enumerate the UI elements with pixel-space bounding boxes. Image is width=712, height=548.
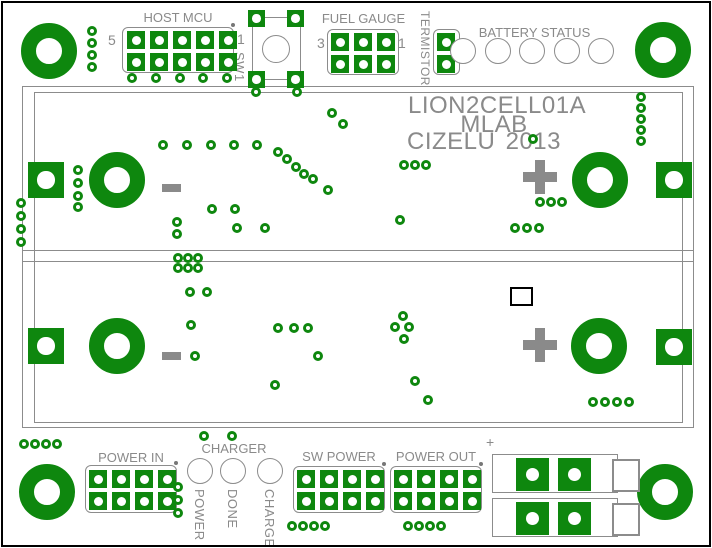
fiducial-square [510, 287, 533, 306]
via [19, 439, 29, 449]
via [636, 125, 646, 135]
cell1-negative-hole [89, 152, 145, 208]
via [173, 482, 183, 492]
host-mcu-header-pin1-dot [231, 23, 235, 27]
battery-contact-pad [28, 328, 64, 364]
via [327, 108, 337, 118]
battery-minus-symbol [162, 352, 181, 360]
sw-power-header-pad [366, 492, 384, 510]
via [414, 521, 424, 531]
sw1-pad [248, 10, 265, 27]
via [423, 395, 433, 405]
power-in-header-pad [89, 470, 107, 488]
via [185, 287, 195, 297]
via [390, 322, 400, 332]
via [282, 154, 292, 164]
via [303, 323, 313, 333]
via [309, 521, 319, 531]
power-out-header-pad [417, 492, 435, 510]
mounting-hole-bottom-left [19, 464, 75, 520]
sw1-pad [287, 10, 304, 27]
pcb-board: HOST MCU 5 1 SW1 FUEL GAUGE 3 1 TERMISTO… [0, 0, 712, 548]
via [320, 521, 330, 531]
via [636, 103, 646, 113]
via [410, 376, 420, 386]
via [127, 73, 137, 83]
fuel-gauge-header-pad [331, 55, 349, 73]
via [30, 439, 40, 449]
via [425, 521, 435, 531]
battery-holder-outline-inner [34, 92, 683, 423]
via [16, 237, 26, 247]
sw-power-header-pad [366, 470, 384, 488]
power-out-header-pad [417, 470, 435, 488]
power-out-label: POWER OUT [390, 450, 482, 463]
via [230, 204, 240, 214]
power-out-header-pad [440, 492, 458, 510]
via [16, 198, 26, 208]
host-mcu-pin5-label: 5 [108, 33, 116, 47]
terminal-clamp [612, 503, 640, 536]
host-mcu-header-pad [196, 53, 214, 71]
terminal-pad [558, 458, 591, 491]
via [399, 334, 409, 344]
via [395, 215, 405, 225]
host-mcu-label: HOST MCU [122, 11, 234, 24]
via [421, 160, 431, 170]
battery-plus-symbol [535, 160, 545, 194]
battery-status-led [519, 38, 545, 64]
charger-charge-led-label: CHARGE [263, 489, 276, 548]
battery-status-led [554, 38, 580, 64]
host-mcu-header-pad [173, 31, 191, 49]
via [87, 38, 97, 48]
via [636, 114, 646, 124]
mounting-hole-top-left [21, 23, 77, 79]
via [87, 50, 97, 60]
via [436, 521, 446, 531]
via [173, 508, 183, 518]
sw-power-label: SW POWER [293, 450, 385, 463]
via [252, 140, 262, 150]
via [270, 380, 280, 390]
via [399, 160, 409, 170]
via [403, 521, 413, 531]
charger-led [257, 458, 283, 484]
via [186, 320, 196, 330]
battery-contact-pad [656, 162, 692, 198]
terminal-clamp [612, 459, 640, 492]
via [182, 140, 192, 150]
via [41, 439, 51, 449]
power-out-header-pad [463, 470, 481, 488]
host-mcu-header-pad [219, 53, 237, 71]
sw-power-header-pad [297, 470, 315, 488]
via [636, 92, 646, 102]
charger-power-led-label: POWER [193, 489, 206, 541]
sw1-pad [287, 71, 304, 88]
power-out-header-pad [394, 470, 412, 488]
charger-label: CHARGER [184, 442, 284, 455]
charger-led [187, 458, 213, 484]
via [260, 223, 270, 233]
via [534, 223, 544, 233]
fuel-gauge-header-pad [377, 55, 395, 73]
fuel-gauge-pin3-label: 3 [317, 36, 325, 50]
charger-led [220, 458, 246, 484]
via [183, 253, 193, 263]
host-mcu-pin1-label: 1 [237, 32, 245, 46]
sw-power-header-pad [320, 470, 338, 488]
terminal-pad [558, 502, 591, 535]
via [308, 174, 318, 184]
sw-power-header-pad [343, 492, 361, 510]
host-mcu-header-pad [196, 31, 214, 49]
via [172, 229, 182, 239]
via [206, 140, 216, 150]
battery-status-led [588, 38, 614, 64]
terminal-pad [516, 458, 549, 491]
via [229, 140, 239, 150]
via [151, 73, 161, 83]
board-author-year: CIZELU 2013 [407, 130, 561, 154]
via [588, 397, 598, 407]
sw-power-header-pad [343, 470, 361, 488]
via [510, 223, 520, 233]
via [298, 521, 308, 531]
via [173, 263, 183, 273]
host-mcu-header-pad [150, 31, 168, 49]
fuel-gauge-header-pad [354, 33, 372, 51]
host-mcu-header-pad [127, 53, 145, 71]
via [323, 185, 333, 195]
board-author: CIZELU [407, 130, 495, 154]
sw-power-header-pad [297, 492, 315, 510]
via [158, 140, 168, 150]
via [636, 136, 646, 146]
via [73, 202, 83, 212]
via [600, 397, 610, 407]
charger-done-led-label: DONE [226, 489, 239, 529]
power-in-label: POWER IN [85, 451, 177, 464]
via [16, 211, 26, 221]
via [183, 263, 193, 273]
via [173, 253, 183, 263]
termistor-label: TERMISTOR [419, 11, 431, 86]
power-out-header-pad [394, 492, 412, 510]
power-out-header-pad [463, 492, 481, 510]
host-mcu-header-pad [150, 53, 168, 71]
via [73, 178, 83, 188]
via [287, 521, 297, 531]
mounting-hole-top-right [635, 22, 691, 78]
via [222, 73, 232, 83]
power-in-header-pad [135, 492, 153, 510]
power-in-header-pin1-dot [174, 461, 178, 465]
terminal-plus-label: + [486, 435, 494, 449]
via [87, 62, 97, 72]
via [557, 197, 567, 207]
sw-power-header-pad [320, 492, 338, 510]
via [198, 73, 208, 83]
power-in-header-pad [112, 470, 130, 488]
via [313, 351, 323, 361]
via [227, 431, 237, 441]
via [175, 73, 185, 83]
via [87, 26, 97, 36]
sw1-button [262, 35, 290, 63]
battery-status-led [450, 38, 476, 64]
via [273, 323, 283, 333]
via [338, 119, 348, 129]
via [173, 495, 183, 505]
battery-divider-line-top [22, 250, 694, 251]
sw-power-header-pin1-dot [382, 462, 386, 466]
host-mcu-header-pad [127, 31, 145, 49]
via [190, 351, 200, 361]
via [410, 160, 420, 170]
via [404, 322, 414, 332]
via [522, 223, 532, 233]
host-mcu-header-pad [173, 53, 191, 71]
power-in-header-pad [135, 470, 153, 488]
battery-plus-symbol [535, 328, 545, 362]
cell1-positive-hole [572, 152, 628, 208]
via [193, 253, 203, 263]
fuel-gauge-header-pad [331, 33, 349, 51]
fuel-gauge-pin1-label: 1 [398, 36, 406, 50]
terminal-block-body [492, 454, 618, 493]
via [535, 197, 545, 207]
via [193, 263, 203, 273]
power-in-header-pad [89, 492, 107, 510]
battery-contact-pad [28, 162, 64, 198]
mounting-hole-bottom-right [637, 464, 693, 520]
via [199, 431, 209, 441]
via [624, 397, 634, 407]
battery-minus-symbol [162, 184, 181, 192]
terminal-pad [516, 502, 549, 535]
battery-contact-pad [656, 329, 692, 365]
power-out-header-pin1-dot [479, 462, 483, 466]
power-in-header-pad [112, 492, 130, 510]
cell2-negative-hole [89, 318, 145, 374]
sw1-pad [248, 71, 265, 88]
fuel-gauge-label: FUEL GAUGE [317, 12, 410, 25]
via [52, 439, 62, 449]
via [289, 323, 299, 333]
via [398, 311, 408, 321]
via [232, 223, 242, 233]
via [612, 397, 622, 407]
via [251, 87, 261, 97]
battery-status-label: BATTERY STATUS [457, 26, 612, 39]
via [546, 197, 556, 207]
power-out-header-pad [440, 470, 458, 488]
via [273, 147, 283, 157]
via [73, 191, 83, 201]
fuel-gauge-header-pad [354, 55, 372, 73]
via [207, 204, 217, 214]
fuel-gauge-header-pad [377, 33, 395, 51]
via [528, 134, 538, 144]
via [202, 287, 212, 297]
battery-divider-line-bottom [22, 261, 694, 262]
host-mcu-header-pad [219, 31, 237, 49]
via [16, 224, 26, 234]
via [73, 165, 83, 175]
via [292, 87, 302, 97]
battery-status-led [485, 38, 511, 64]
terminal-block-body [492, 498, 618, 537]
cell2-positive-hole [571, 318, 627, 374]
via [172, 217, 182, 227]
